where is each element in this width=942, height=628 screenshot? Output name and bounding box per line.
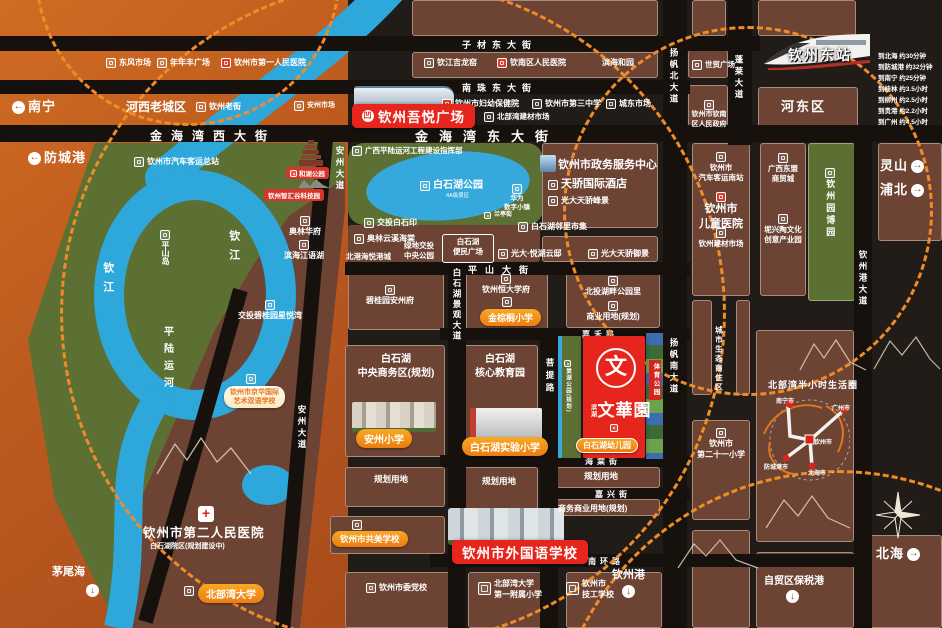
label-line: 汽车客运南站 (699, 173, 744, 182)
market-icon (106, 58, 116, 68)
label-text: 光大·悦湖云邸 (511, 249, 562, 259)
poi-canal-hq: 广西平陆运河工程建设指挥部 (352, 146, 463, 156)
residence-icon (265, 300, 275, 310)
label-line: 广西东盟 (768, 164, 798, 173)
travel-time: 到广州 约4.5小时 (878, 118, 928, 128)
road-label: 白石湖景观大道 (451, 268, 463, 342)
poi-anzhou-primary: 安州小学 (356, 429, 412, 448)
mountains-icon (764, 490, 854, 532)
poi-dongmeng-mall: 广西东盟商贸城 (760, 153, 806, 184)
label-text: 北投湖畔公园里 (585, 287, 641, 297)
label-line: 核心教育园 (475, 368, 525, 381)
poi-bwu-primary: 北部湾大学第一附属小学 (494, 579, 552, 600)
land-icon (608, 301, 618, 311)
maowei-sea-label: 茅尾海 (52, 566, 85, 580)
poi-bwu: 北部湾大学 (198, 584, 264, 603)
poi-xingyuewan: 交投碧桂园星悦湾 (232, 300, 308, 321)
city-block (345, 572, 457, 628)
government-icon (704, 100, 714, 110)
label-line: 钦州市 (709, 439, 733, 449)
label-text: 钦州建材市场 (699, 239, 744, 248)
label-line: 创意产业园 (764, 235, 802, 244)
gov-center-render (540, 155, 556, 172)
road-label: 南环路 (588, 556, 624, 567)
label-text: 北部湾建材市场 (497, 112, 550, 121)
poi-edu-park: 白石湖核心教育园 (466, 354, 534, 380)
poi-aolin-huafu: 奥林华府 (282, 216, 328, 237)
label-text: 兰亭街 (494, 212, 512, 220)
residence-icon (498, 249, 508, 259)
travel-time: 到桂林 约3.5小时 (878, 85, 928, 95)
road-label: 扬帆南大道 (668, 338, 680, 396)
second-hospital-icon-wrap: + (198, 506, 214, 522)
poi-yuanbo-garden: 钦州园博园 (824, 168, 835, 239)
poi-qinnan-hospital: 钦南区人民医院 (497, 58, 566, 68)
minimap-beihai: 北海市 (808, 468, 826, 477)
arrow-left-icon: ← (12, 101, 25, 114)
arrow-right-icon: → (911, 160, 924, 173)
bus-icon (134, 157, 144, 167)
travel-time: 到柳州 约2.5小时 (878, 96, 928, 106)
road-label: 钦州港大道 (857, 250, 869, 308)
label-text: 防城港 (44, 150, 86, 166)
label-text: 滨海江语湖 (284, 251, 324, 261)
arrow-down-icon: ↓ (786, 590, 799, 603)
label-line: 艺术双语学校 (230, 397, 279, 406)
direction-baoshuigang: 自贸区保税港 (764, 576, 824, 589)
hospital-cross-icon: + (198, 506, 214, 522)
university-icon (184, 586, 194, 596)
travel-time: 到贵港 约2.2小时 (878, 107, 928, 117)
label-text: 钦州市第三中学 (545, 99, 601, 109)
poi-hupan-park: 北投湖畔公园里 (580, 276, 646, 297)
poi-lanting-street: 兰亭街 (484, 212, 512, 220)
market-icon (778, 153, 788, 163)
label-text: 平山岛 (160, 241, 170, 265)
poi-foreign-school: 钦州市外国语学校 (452, 540, 588, 564)
poi-gongmei-school: 钦州市共美学校 (332, 531, 408, 547)
city-block (692, 300, 712, 395)
label-line: 便民广场 (453, 247, 483, 256)
bwu-icon-wrap (184, 586, 194, 596)
jinzonglv-icon-wrap (502, 297, 512, 307)
poi-linli-market: 白石湖邻里市集 (518, 222, 587, 232)
planned-land-label: 规划用地 (374, 474, 408, 485)
label-text: 白石湖公园 (433, 180, 483, 193)
label-text: 碧桂园安州府 (366, 296, 414, 306)
label-line: 中央商务区(规划) (358, 368, 435, 381)
minimap-guangzhou: 广州市 (832, 403, 850, 412)
label-text: 商业用地(规划) (586, 312, 639, 322)
mountains-icon (872, 333, 942, 373)
label-text: 钦南区人民医院 (510, 58, 566, 68)
label-text: 钦州市委党校 (379, 583, 427, 593)
poi-tianjiao-hotel: 天骄国际酒店 (548, 178, 627, 192)
jinghua-school-icon-wrap (246, 374, 256, 384)
island-icon (160, 230, 170, 240)
label-text: 奥林华府 (289, 227, 321, 237)
poi-cbd: 白石湖中央商务区(规划) (356, 354, 436, 380)
poi-chengdong-market: 城东市场 (606, 99, 651, 109)
label-line: 钦州市 (582, 579, 606, 589)
poi-tianjiao-fengjing: 光大天骄峰景 (548, 196, 609, 206)
poi-qinnan-government: 钦州市钦南区人民政府 (686, 100, 732, 130)
baoshuigang-arrow: ↓ (786, 590, 799, 603)
compass-icon (874, 490, 922, 540)
poi-main-bus-station: 钦州市汽车客运总站 (134, 157, 219, 167)
river-qinjiang-label: 钦江 (100, 262, 114, 300)
poi-nixing-park: 坭兴陶文化创意产业园 (756, 214, 810, 245)
label-line: 技工学校 (582, 590, 614, 600)
poi-kindergarten: 白石湖幼儿园 (576, 438, 638, 453)
poi-yuehu-yundi: 光大·悦湖云邸 (498, 249, 562, 259)
travel-time: 到防城港 约32分钟 (878, 63, 933, 73)
label-line: 北部湾大学 (494, 579, 534, 589)
label-text: 钦州老街 (209, 102, 241, 112)
label-line: 钦州市 (710, 163, 733, 172)
park-icon (608, 276, 618, 286)
fuxiao-icon-wrap (478, 582, 491, 595)
plaza-icon (157, 58, 167, 68)
road-label: 南珠东大街 (462, 81, 537, 94)
label-text: 光大天骄峰景 (561, 196, 609, 206)
poi-jilongyao: 钦江吉龙窑 (424, 58, 477, 68)
label-line: 钦州市钦南 (692, 111, 727, 120)
label-line: 华为 (511, 195, 524, 203)
project-name: 滨湖 文華園 (588, 400, 652, 421)
park-strip-label-wrap: 棠湖公园(规划) (564, 360, 571, 413)
label-line: 白石湖 (381, 354, 411, 367)
school-icon (566, 582, 579, 595)
poi-children-hospital: 钦州市儿童医院 (692, 192, 750, 232)
poi-south-bus-station: 钦州市汽车客运南站 (692, 152, 750, 183)
logo-char: 文 (605, 354, 627, 379)
market-icon (484, 112, 494, 122)
minimap-title: 北部湾半小时生活圈 (768, 380, 858, 391)
park-icon (825, 168, 835, 178)
label-line: 中央公园 (404, 251, 434, 260)
street-icon (484, 212, 491, 219)
poi-bianmin-plaza: 白石湖便民广场 (444, 237, 492, 257)
poi-dangxiao: 钦州市委党校 (366, 583, 427, 593)
poi-no21-primary: 钦州市第二十一小学 (692, 428, 750, 460)
poi-second-hospital: 钦州市第二人民医院 (143, 526, 265, 542)
label-text: 安州市场 (307, 102, 335, 111)
poi-baishihu-park-sub: 4A级景区 (446, 193, 469, 200)
label-text: 南宁 (28, 99, 56, 115)
poi-jiangyu-lake: 滨海江语湖 (276, 240, 332, 261)
poi-greenland-park: 绿地交投中央公园 (398, 241, 440, 261)
planned-land-label: 规划用地 (482, 476, 516, 487)
label-text: 交投碧桂园星悦湾 (238, 311, 302, 321)
bus-icon (716, 152, 726, 162)
market-icon (606, 99, 616, 109)
east-station-label: 钦州东站 (788, 47, 852, 65)
residence-icon (299, 240, 309, 250)
mountains-icon (798, 336, 870, 374)
school-icon (478, 582, 491, 595)
poi-no3-middle-school: 钦州市第三中学 (532, 99, 601, 109)
label-line: 白石湖 (485, 354, 515, 367)
poi-shimao-plaza: 世贸广场 (692, 60, 735, 70)
market-icon (294, 101, 304, 111)
park-icon (290, 170, 297, 177)
pagoda-icon (298, 138, 324, 168)
poi-first-hospital: 钦州市第一人民医院 (221, 58, 306, 68)
poi-second-hospital-sub: 白石湖院区(规划建设中) (150, 543, 225, 552)
hotel-icon (548, 180, 558, 190)
poi-zhihui-valley: 钦州智汇谷科技园 (264, 189, 324, 201)
label-text: 钦州市汽车客运总站 (147, 157, 219, 167)
road-label: 嘉兴街 (595, 489, 631, 500)
poi-anzhoufu: 碧桂园安州府 (360, 285, 420, 306)
label-line: 钦州市 (705, 203, 738, 217)
hospital-icon (221, 58, 231, 68)
jigong-icon-wrap (566, 582, 579, 595)
label-line: 商贸城 (772, 174, 795, 183)
poi-commercial-planned: 商业用地(规划) (580, 301, 646, 322)
street-icon (196, 102, 206, 112)
planned-land-block (462, 467, 538, 513)
road-nanzhu (0, 80, 690, 94)
poi-binhai-heyuan: 滨海和园 (602, 58, 634, 68)
travel-time: 到南宁 约25分钟 (878, 74, 926, 84)
arrow-right-icon: → (911, 184, 924, 197)
government-icon (352, 146, 362, 156)
travel-times-panel: 到北海 约30分钟 到防城港 约32分钟 到南宁 约25分钟 到桂林 约3.5小… (878, 52, 933, 128)
road-qinzhougang-ave (854, 130, 872, 628)
market-icon (518, 222, 528, 232)
poi-niannianfeng: 年年丰广场 (157, 58, 210, 68)
mountains-icon (155, 432, 255, 478)
school-icon (502, 297, 512, 307)
canal-label: 平陆运河 (160, 326, 173, 394)
direction-qinzhougang: 钦州港 (612, 569, 645, 583)
label-text: 天骄国际酒店 (561, 178, 627, 192)
poi-hehu-park: 和湖公园 (286, 167, 329, 179)
poi-shiyan-primary: 白石湖实验小学 (462, 437, 548, 456)
road-label: 安州大道 (334, 146, 346, 192)
hospital-icon (497, 58, 507, 68)
poi-dongfeng-market: 东风市场 (106, 58, 151, 68)
hospital-icon (716, 192, 726, 202)
minimap-qinzhou: 钦州市 (814, 437, 832, 446)
wuyue-banner: 凹钦州吾悦广场 (352, 104, 475, 128)
label-line: 第二十一小学 (697, 450, 745, 460)
school-icon (246, 374, 256, 384)
poi-baishihu-park: 白石湖公园 (420, 180, 483, 193)
label-line: 区人民政府 (692, 121, 727, 130)
residence-icon (501, 274, 511, 284)
brand-name: 文華園 (598, 400, 652, 421)
plaza-icon (692, 60, 702, 70)
school-icon (352, 520, 362, 530)
poi-huawei-town: 华为数字小镇 (498, 184, 536, 212)
road-label: 菩提路 (544, 358, 556, 396)
label-text: 钦州吾悦广场 (378, 106, 465, 126)
label-line: 白石湖 (457, 237, 480, 246)
road-label: 安州大道 (296, 405, 308, 451)
poi-jinzonglv-primary: 金棕榈小学 (480, 309, 541, 326)
arrow-left-icon: ← (28, 152, 41, 165)
poi-baishiyin: 交投白石印 (364, 218, 417, 228)
park-icon (420, 181, 430, 191)
government-icon (366, 583, 376, 593)
project-logo: 文 (596, 348, 636, 388)
maowei-sea-arrow: ↓ (86, 584, 99, 597)
poi-anzhou-market: 安州市场 (294, 101, 335, 111)
arrow-down-icon: ↓ (86, 584, 99, 597)
label-text: 年年丰广场 (170, 58, 210, 68)
road-label: 金海湾东大街 (415, 126, 559, 145)
project-marker-wrap (610, 424, 618, 432)
road-label: 扬帆北大道 (668, 48, 680, 106)
label-line: 绿地交投 (404, 241, 434, 250)
city-block (692, 0, 726, 36)
brand-prefix: 滨湖 (588, 404, 596, 418)
label-text: 滨海和园 (602, 58, 634, 68)
tech-icon (512, 184, 522, 194)
label-text: 广西平陆运河工程建设指挥部 (365, 146, 463, 155)
kindergarten-icon (610, 424, 618, 432)
residence-icon (364, 218, 374, 228)
city-block (412, 0, 658, 36)
poi-beigang-haiyue: 北港海悦港城 (346, 252, 391, 261)
minimap-nanning: 南宁市 (776, 396, 794, 405)
minimap-fangchenggang: 防城港市 (764, 462, 788, 471)
label-text: 钦州恒大学府 (482, 285, 530, 295)
road-label: 金海湾西大街 (150, 127, 276, 144)
residence-icon (588, 249, 598, 259)
planned-land-block (345, 467, 445, 507)
qinzhougang-arrow: ↓ (622, 585, 635, 598)
poi-tianjiao-yujing: 光大天骄御景 (588, 249, 649, 259)
label-text: 钦州市第一人民医院 (234, 58, 306, 68)
residence-icon (300, 216, 310, 226)
label-text: 钦州园博园 (824, 179, 835, 239)
poi-hengda: 钦州恒大学府 (478, 274, 534, 295)
direction-pubei: 浦北→ (880, 182, 924, 198)
poi-jinghua-school: 钦州市京华国际艺术双语学校 (224, 386, 285, 408)
label-text: 浦北 (880, 182, 908, 198)
gongmei-icon-wrap (352, 520, 362, 530)
direction-lingshan: 灵山→ (880, 158, 924, 174)
eco-area-label: 城市生态商住区 (714, 326, 723, 393)
road-label: 子材东大街 (462, 38, 537, 51)
planned-land-label: 规划用地 (584, 471, 618, 482)
label-line: 第一附属小学 (494, 590, 542, 600)
residence-icon (385, 285, 395, 295)
label-line: 钦州市京华国际 (230, 388, 279, 397)
city-block (736, 300, 750, 395)
cbd-render (352, 402, 436, 432)
arrow-down-icon: ↓ (622, 585, 635, 598)
direction-fangchenggang: ←防城港 (28, 150, 86, 166)
poi-jiancai-market: 钦州建材市场 (692, 228, 750, 248)
kiln-icon (424, 58, 434, 68)
label-text: 城东市场 (619, 99, 651, 109)
label-text: 白石湖邻里市集 (531, 222, 587, 232)
label-text: 北海 (876, 546, 904, 562)
label-text: 交投白石印 (377, 218, 417, 228)
pingshan-island-label: 平山岛 (160, 230, 170, 265)
district-hexi: 河西老城区 (126, 100, 186, 115)
road-zicai (0, 36, 760, 51)
arrow-right-icon: → (907, 548, 920, 561)
label-text: 灵山 (880, 158, 908, 174)
mall-icon: 凹 (362, 110, 374, 122)
school-icon (716, 428, 726, 438)
label-text: 世贸广场 (705, 60, 735, 69)
poi-gov-service-center: 钦州市政务服务中心 (558, 159, 657, 173)
residence-icon (548, 196, 558, 206)
poi-biz-planned: 商务商业用地(规划) (558, 504, 627, 514)
label-text: 光大天骄御景 (601, 249, 649, 259)
poi-bbw-building-market: 北部湾建材市场 (484, 112, 550, 122)
direction-beihai: 北海→ (876, 546, 920, 562)
sports-park-tag: 体育公园 (649, 360, 661, 400)
district-hedong: 河东区 (781, 99, 826, 115)
travel-time: 到北海 约30分钟 (878, 52, 926, 62)
park-strip-label: 棠湖公园(规划) (564, 368, 571, 413)
culture-icon (778, 214, 788, 224)
label-text: 东风市场 (119, 58, 151, 68)
location-map: 子材东大街 南珠东大街 金海湾西大街 金海湾东大街 平山大街 嘉禾路 海棠街 嘉… (0, 0, 942, 628)
market-icon (716, 228, 726, 238)
label-text: 和湖公园 (299, 171, 325, 178)
label-line: 坭兴陶文化 (764, 225, 802, 234)
poi-old-street: 钦州老街 (196, 102, 241, 112)
mountains-icon (676, 536, 762, 572)
direction-nanning: ←南宁 (12, 99, 56, 115)
river-qinjiang-label: 钦江 (226, 230, 240, 268)
residence-icon (354, 234, 364, 244)
school-icon (532, 99, 542, 109)
label-text: 钦江吉龙窑 (437, 58, 477, 68)
park-icon (564, 360, 571, 367)
